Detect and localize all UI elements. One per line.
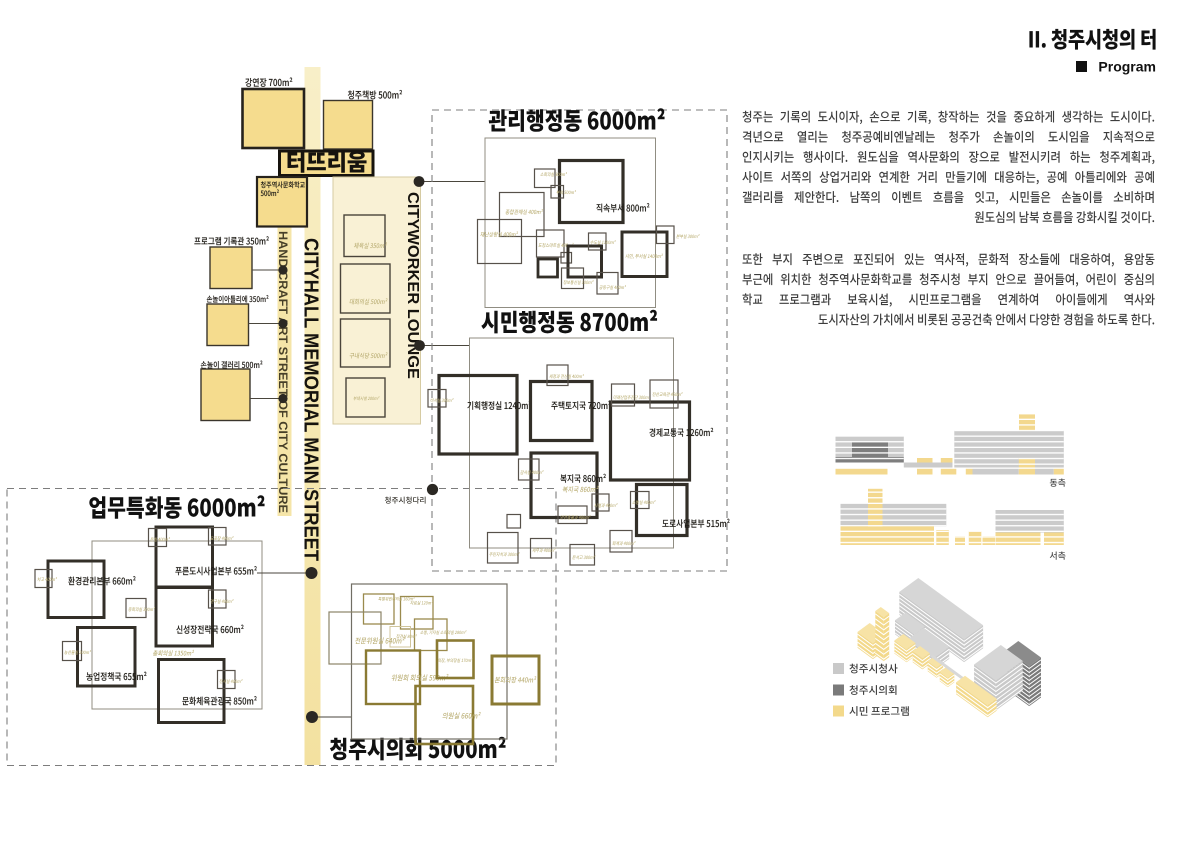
svg-text:CITYWORKER LOUNGE: CITYWORKER LOUNGE: [404, 192, 421, 379]
svg-text:CITYHALL MEMORIAL MAIN STREET: CITYHALL MEMORIAL MAIN STREET: [300, 238, 323, 561]
svg-text:Program: Program: [1098, 59, 1156, 75]
